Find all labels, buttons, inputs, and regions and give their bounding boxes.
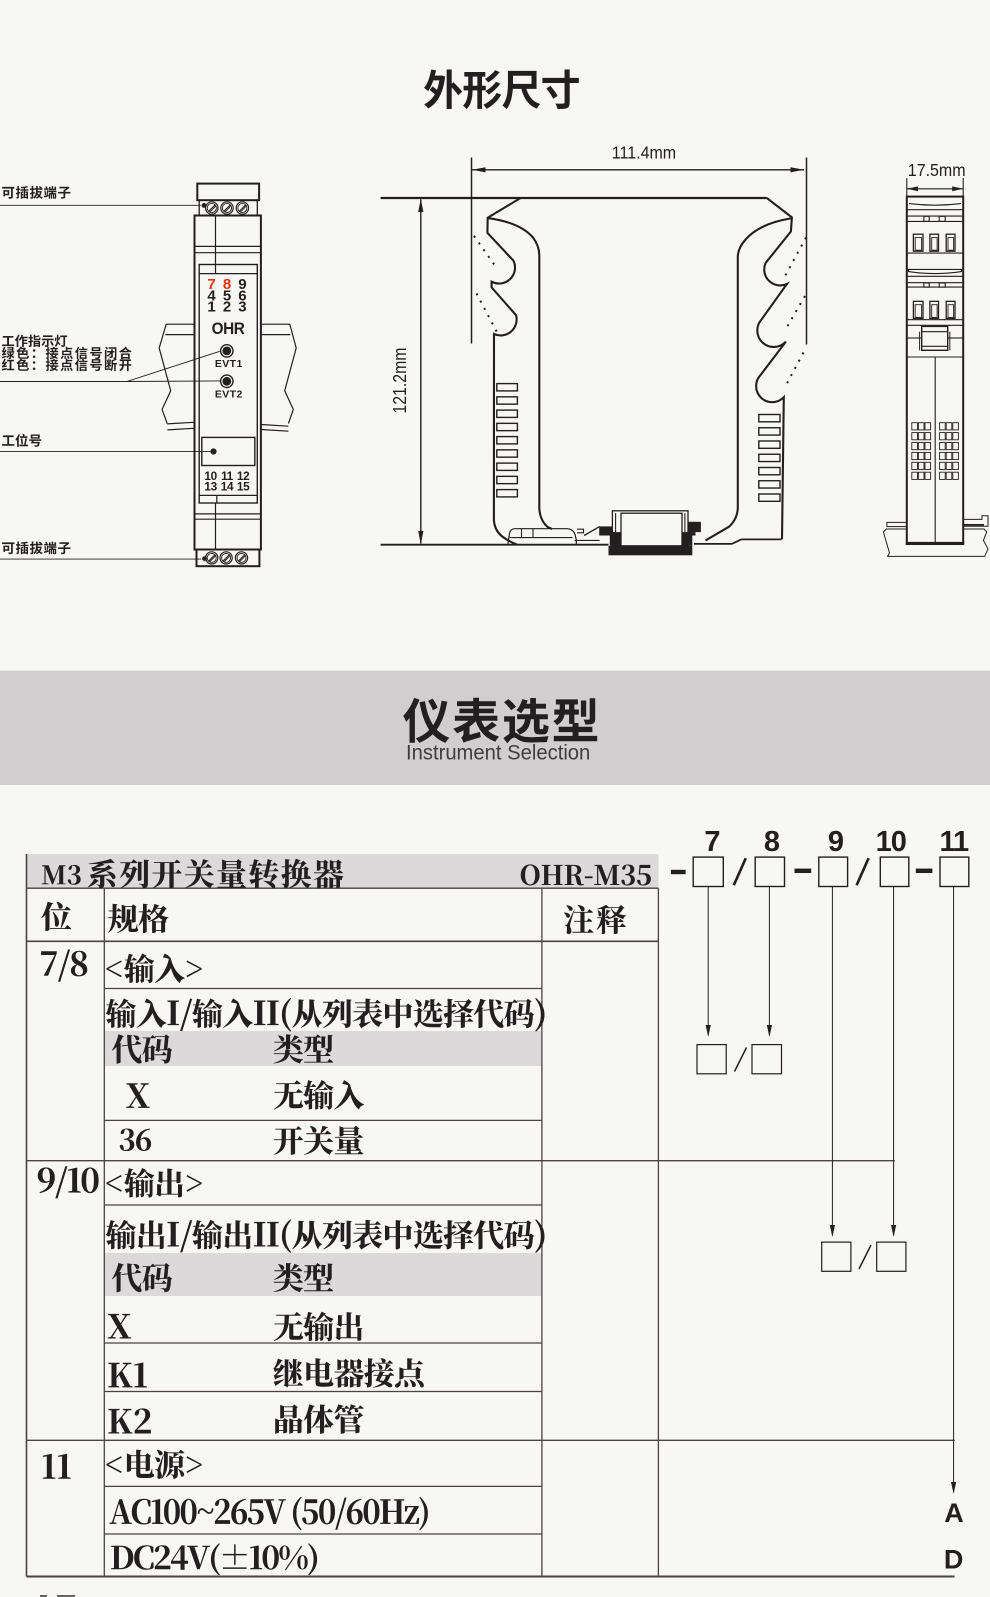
svg-text:3: 3 [238,298,246,315]
svg-text:EVT2: EVT2 [215,388,243,400]
svg-text:1: 1 [207,298,215,315]
svg-text:13: 13 [204,480,217,494]
svg-text:2: 2 [223,298,231,315]
svg-text:14: 14 [221,480,234,494]
svg-text:15: 15 [237,480,250,494]
svg-text:OHR: OHR [212,320,245,338]
svg-text:9: 9 [828,826,844,858]
svg-text:121.2mm: 121.2mm [389,347,410,413]
svg-text:7: 7 [704,826,720,858]
svg-text:111.4mm: 111.4mm [612,143,676,163]
svg-text:A: A [944,1498,964,1528]
svg-text:D: D [944,1544,964,1574]
svg-text:EVT1: EVT1 [215,358,243,370]
svg-text:Instrument Selection: Instrument Selection [406,742,590,765]
svg-text:10: 10 [876,826,906,858]
svg-text:8: 8 [764,826,780,858]
svg-text:17.5mm: 17.5mm [908,160,966,180]
svg-text:11: 11 [939,826,969,858]
